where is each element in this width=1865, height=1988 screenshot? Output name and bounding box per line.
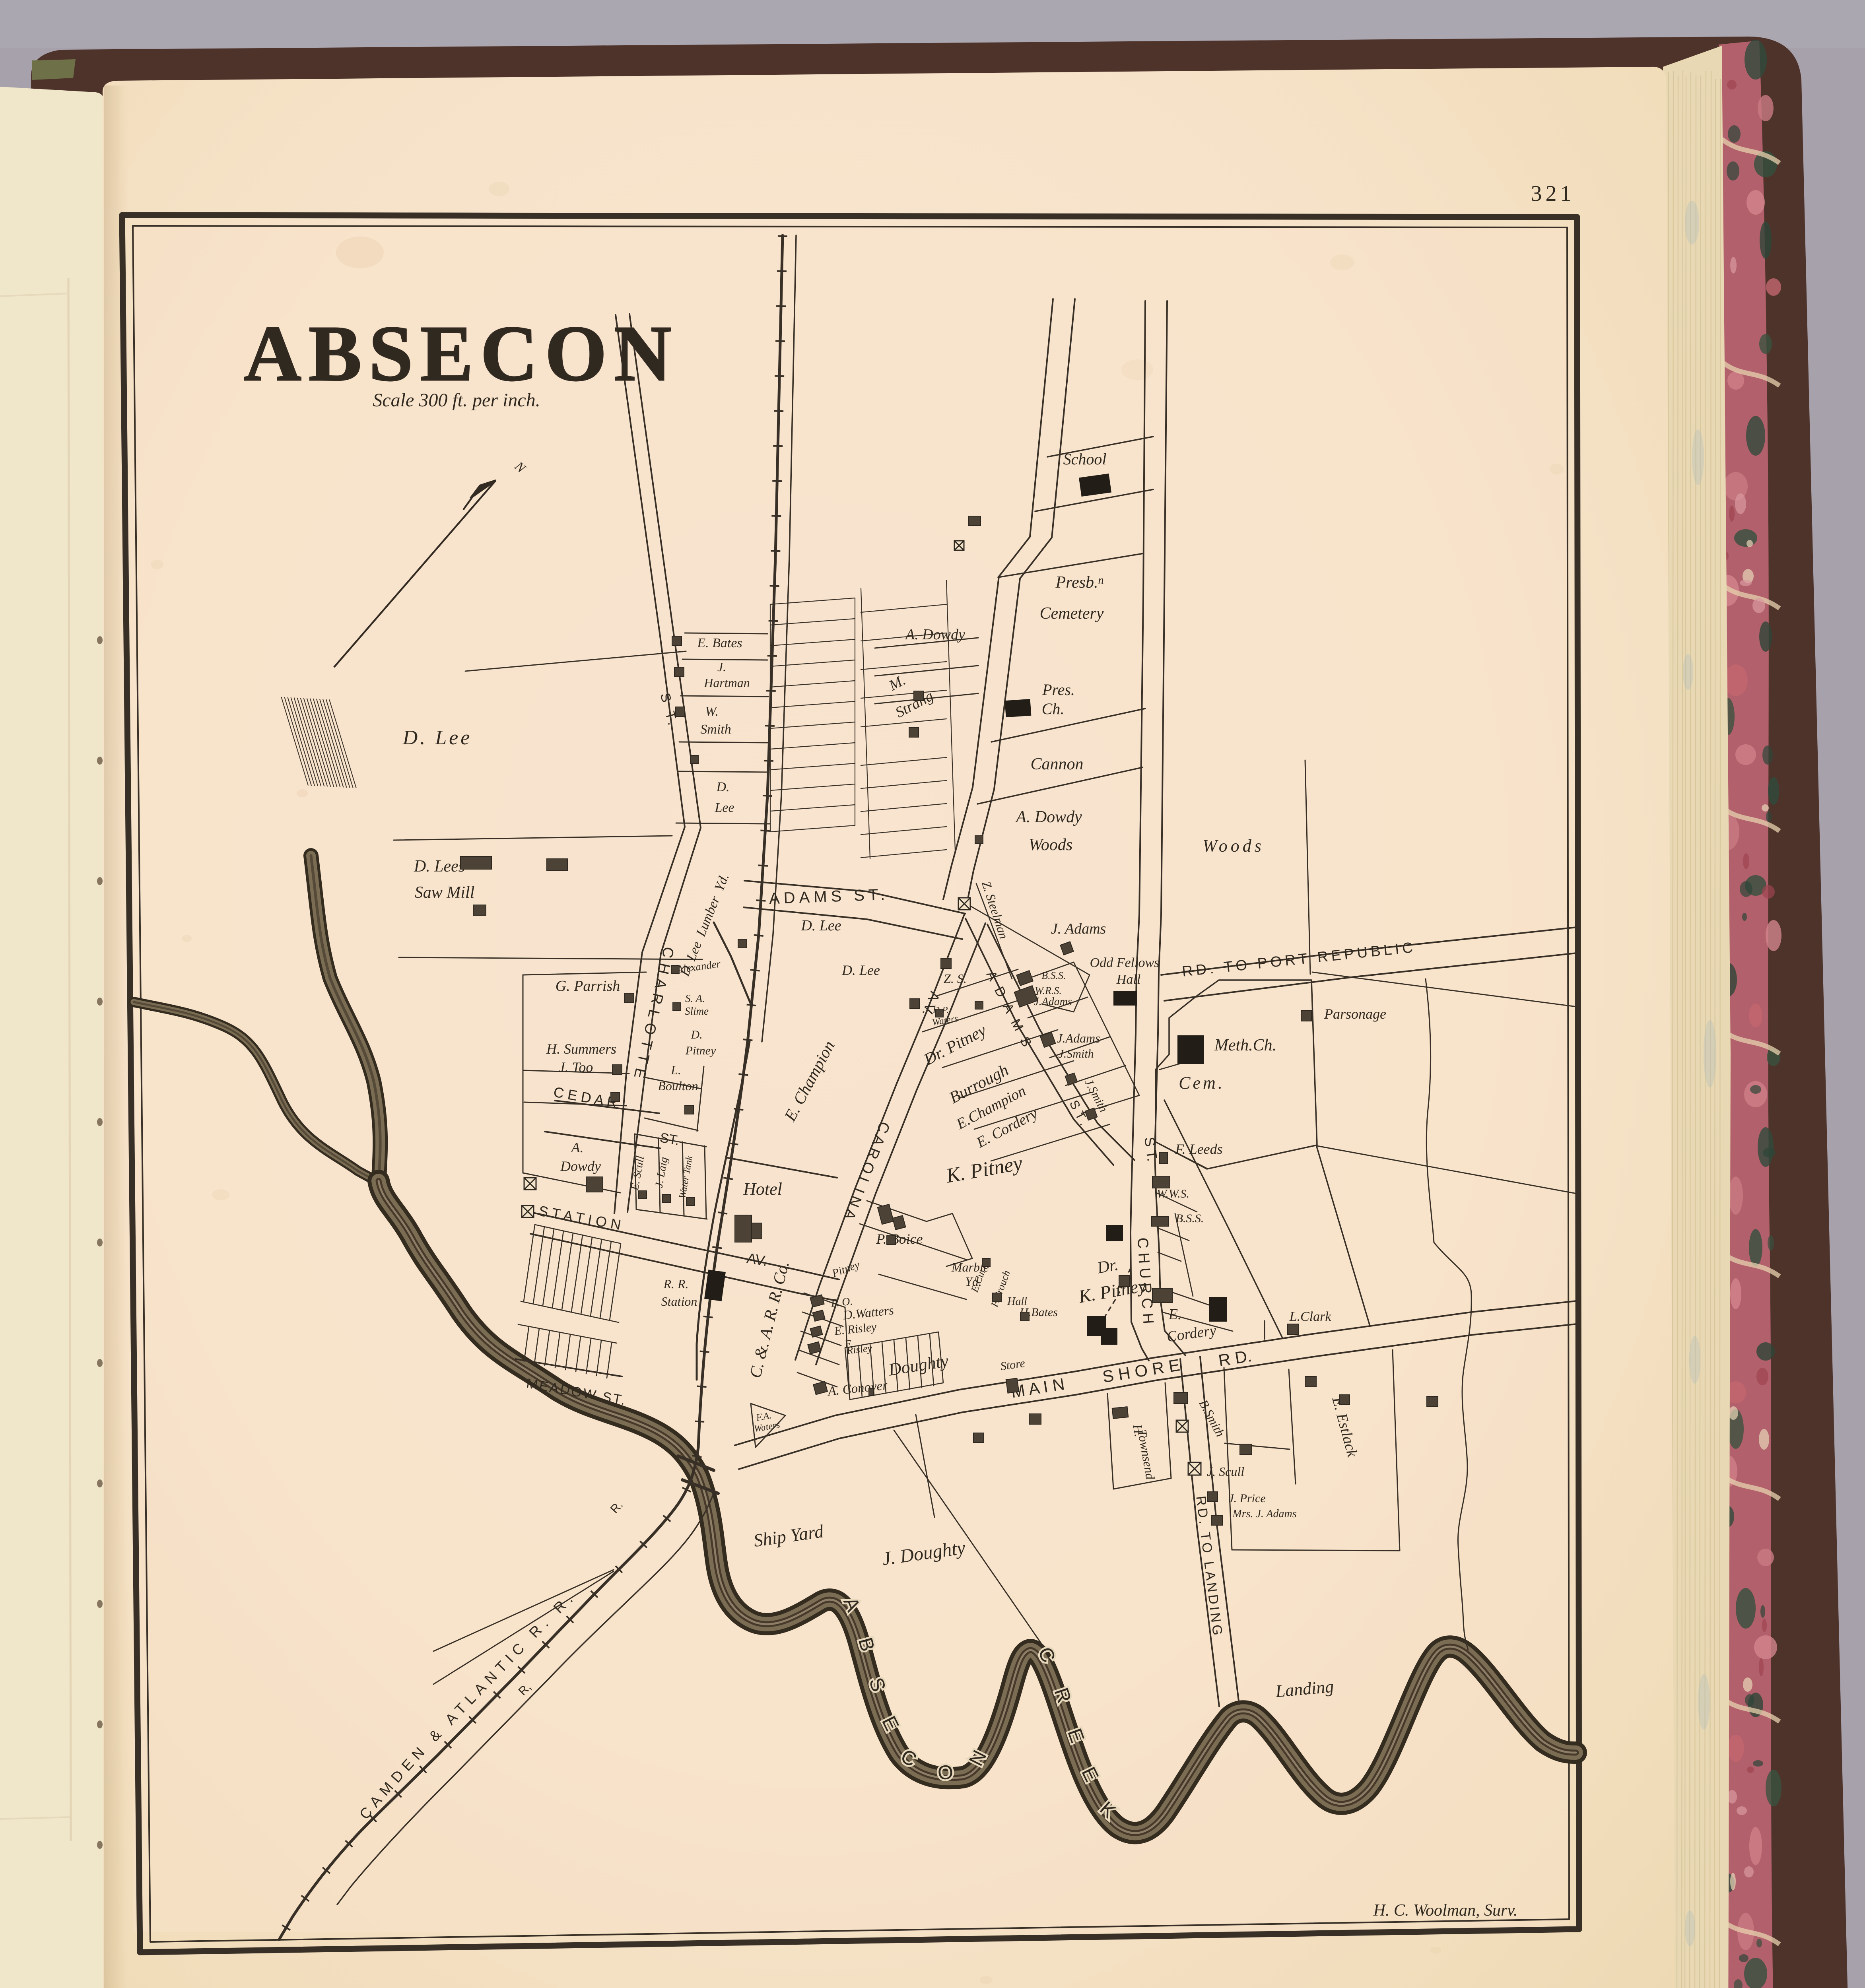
svg-text:Parsonage: Parsonage	[1324, 1006, 1386, 1022]
svg-text:A. Dowdy: A. Dowdy	[1015, 808, 1082, 826]
svg-text:Scale 300 ft. per inch.: Scale 300 ft. per inch.	[373, 390, 540, 411]
svg-text:H. C. Woolman, Surv.: H. C. Woolman, Surv.	[1373, 1901, 1518, 1920]
svg-text:W.: W.	[705, 704, 719, 719]
svg-text:Boulton: Boulton	[658, 1079, 698, 1093]
svg-text:D. Lees: D. Lees	[414, 857, 465, 876]
svg-text:Pitney: Pitney	[685, 1044, 716, 1057]
svg-text:Woods: Woods	[1203, 836, 1265, 856]
svg-text:D. Lee: D. Lee	[800, 917, 841, 934]
svg-text:H. Summers: H. Summers	[546, 1041, 616, 1057]
svg-text:J.Adams: J.Adams	[1034, 996, 1072, 1008]
svg-text:A.: A.	[571, 1140, 584, 1155]
svg-text:Lee: Lee	[714, 800, 734, 815]
svg-text:J.Smith: J.Smith	[1058, 1047, 1094, 1060]
svg-text:L.Clark: L.Clark	[1289, 1309, 1332, 1324]
svg-text:L.: L.	[670, 1063, 681, 1077]
svg-text:W.W.S.: W.W.S.	[1157, 1187, 1189, 1200]
svg-text:Cem.: Cem.	[1179, 1073, 1225, 1093]
svg-text:Slime: Slime	[685, 1005, 709, 1017]
svg-text:Presb.n: Presb.n	[1055, 573, 1104, 592]
svg-text:G. Parrish: G. Parrish	[556, 978, 620, 994]
svg-text:Smith: Smith	[700, 722, 731, 737]
svg-text:ABSECON: ABSECON	[244, 310, 679, 398]
svg-text:J. Scull: J. Scull	[1207, 1464, 1244, 1479]
svg-text:S. A.: S. A.	[685, 992, 705, 1004]
svg-text:Dowdy: Dowdy	[560, 1158, 601, 1174]
svg-text:School: School	[1063, 450, 1107, 468]
svg-text:Hall: Hall	[1116, 972, 1140, 987]
svg-text:D. Lee: D. Lee	[402, 726, 472, 749]
svg-text:Saw Mill: Saw Mill	[415, 883, 475, 902]
svg-text:R. R.: R. R.	[663, 1277, 688, 1291]
svg-text:J.: J.	[717, 660, 726, 674]
svg-text:Hotel: Hotel	[743, 1179, 782, 1199]
svg-text:Pres.: Pres.	[1042, 681, 1075, 699]
svg-text:P. Boice: P. Boice	[876, 1231, 923, 1247]
svg-text:D. Lee: D. Lee	[841, 962, 880, 978]
svg-text:Dr.: Dr.	[1096, 1256, 1120, 1277]
svg-text:W.R.S.: W.R.S.	[1035, 985, 1062, 996]
svg-text:J. Adams: J. Adams	[1051, 920, 1106, 937]
svg-text:Z. S.: Z. S.	[944, 971, 967, 986]
svg-text:D.: D.	[716, 780, 729, 794]
svg-text:E.: E.	[1168, 1306, 1182, 1323]
svg-text:Hartman: Hartman	[703, 676, 750, 690]
svg-text:Mrs. J. Adams: Mrs. J. Adams	[1232, 1508, 1296, 1520]
svg-text:321: 321	[1531, 181, 1575, 206]
svg-text:J. Price: J. Price	[1228, 1492, 1265, 1505]
svg-text:S T.: S T.	[1141, 1136, 1161, 1162]
svg-text:D.: D.	[690, 1028, 702, 1041]
svg-text:Station: Station	[661, 1294, 697, 1309]
svg-text:E. Bates: E. Bates	[697, 636, 742, 650]
svg-text:Cannon: Cannon	[1030, 755, 1083, 773]
svg-text:B.S.S.: B.S.S.	[1176, 1212, 1204, 1225]
svg-text:Meth.Ch.: Meth.Ch.	[1214, 1036, 1276, 1054]
svg-text:Ch.: Ch.	[1042, 700, 1065, 718]
svg-text:J.Adams: J.Adams	[1057, 1031, 1100, 1045]
svg-text:Woods: Woods	[1029, 836, 1072, 854]
svg-text:B.S.S.: B.S.S.	[1041, 970, 1066, 981]
svg-text:Odd Fellows: Odd Fellows	[1090, 955, 1160, 970]
svg-text:A. Dowdy: A. Dowdy	[904, 626, 965, 643]
svg-text:Cemetery: Cemetery	[1040, 604, 1104, 623]
svg-text:J. Too: J. Too	[559, 1059, 593, 1075]
svg-text:F. Leeds: F. Leeds	[1175, 1141, 1222, 1157]
